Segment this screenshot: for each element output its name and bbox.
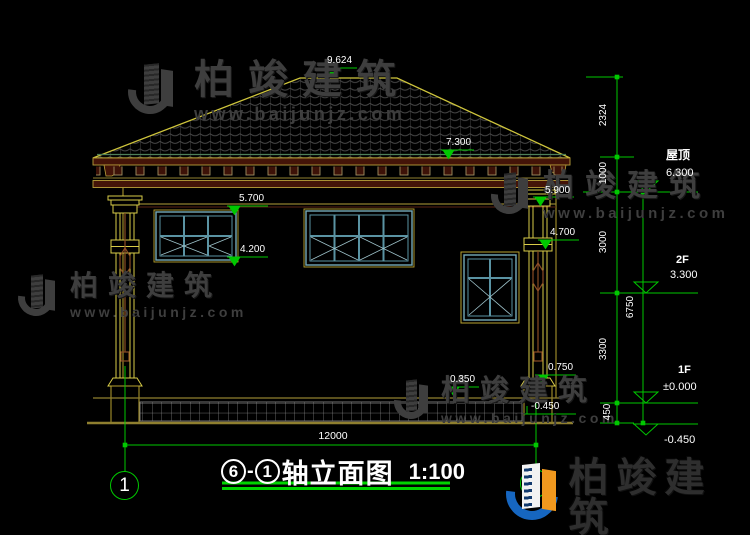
window-right — [461, 252, 519, 323]
level-capital-top: 5.900 — [545, 186, 570, 196]
watermark-brand-text: 柏竣建筑 — [70, 272, 247, 300]
watermark-url-text: www.baijunjz.com — [543, 205, 728, 222]
dim-total-height: 6750 — [626, 285, 636, 329]
watermark-brand-text: 柏竣建筑 — [194, 60, 410, 100]
level-window-head: 5.700 — [239, 194, 264, 204]
dim-f2-to-f1: 3300 — [599, 327, 609, 371]
title-axis-from-bubble: 6 — [221, 459, 246, 484]
watermark-top: 柏竣建筑 www.baijunjz.com — [126, 60, 410, 125]
drawing-title: 6 - 1 轴立面图 1:100 — [221, 452, 465, 491]
story-foundation-value: -0.450 — [664, 435, 695, 446]
story-roof-value: 6.300 — [666, 168, 694, 179]
story-f1-value: ±0.000 — [663, 382, 697, 393]
window-left — [154, 210, 238, 262]
level-ground: -0.450 — [531, 402, 559, 412]
watermark-logo-icon — [126, 60, 186, 122]
watermark-bottom: 柏竣建筑 www.baijunjz.com — [392, 377, 618, 427]
brand-logo: 柏竣建筑 www.baijunjz.com — [504, 458, 750, 535]
dim-roof-to-f2: 3000 — [599, 220, 609, 264]
story-f1-label: 1F — [678, 365, 691, 376]
level-ridge: 9.624 — [327, 56, 352, 66]
level-roof-eave: 7.300 — [446, 138, 471, 148]
title-axis-to-bubble: 1 — [255, 459, 280, 484]
title-dash: - — [247, 460, 254, 483]
watermark-url-text: www.baijunjz.com — [194, 104, 410, 125]
watermark-logo-icon — [392, 377, 436, 427]
dim-f1-to-found: 450 — [603, 390, 613, 434]
brand-logo-icon — [504, 458, 565, 530]
brand-name: 柏竣建筑 — [569, 458, 750, 535]
level-window-sill: 4.200 — [240, 245, 265, 255]
axis-bubble-1: 1 — [110, 471, 139, 500]
cad-elevation-drawing: 柏竣建筑 www.baijunjz.com 柏竣建筑 www.baijunjz.… — [0, 0, 750, 535]
watermark-brand-text: 柏竣建筑 — [543, 170, 728, 201]
watermark-url-text: www.baijunjz.com — [70, 304, 247, 320]
level-column-base: 0.750 — [548, 363, 573, 373]
title-name: 轴立面图 — [282, 452, 394, 491]
story-f2-value: 3.300 — [670, 270, 698, 281]
right-downpipe — [533, 251, 543, 361]
watermark-logo-icon — [16, 272, 64, 324]
story-roof-label: 屋顶 — [666, 149, 690, 161]
level-wall-base: 0.350 — [450, 375, 475, 385]
dim-total-width: 12000 — [308, 431, 358, 442]
level-capital-bottom: 4.700 — [550, 228, 575, 238]
watermark-left: 柏竣建筑 www.baijunjz.com — [16, 272, 247, 324]
dimension-chain — [586, 75, 645, 425]
dim-ridge-to-eave: 2324 — [599, 93, 609, 137]
dim-eave-to-roof-level: 1000 — [599, 151, 609, 195]
watermark-logo-icon — [489, 170, 537, 222]
window-center — [304, 209, 414, 267]
title-scale: 1:100 — [409, 459, 465, 485]
story-f2-label: 2F — [676, 255, 689, 266]
watermark-url-text: www.baijunjz.com — [441, 410, 618, 426]
